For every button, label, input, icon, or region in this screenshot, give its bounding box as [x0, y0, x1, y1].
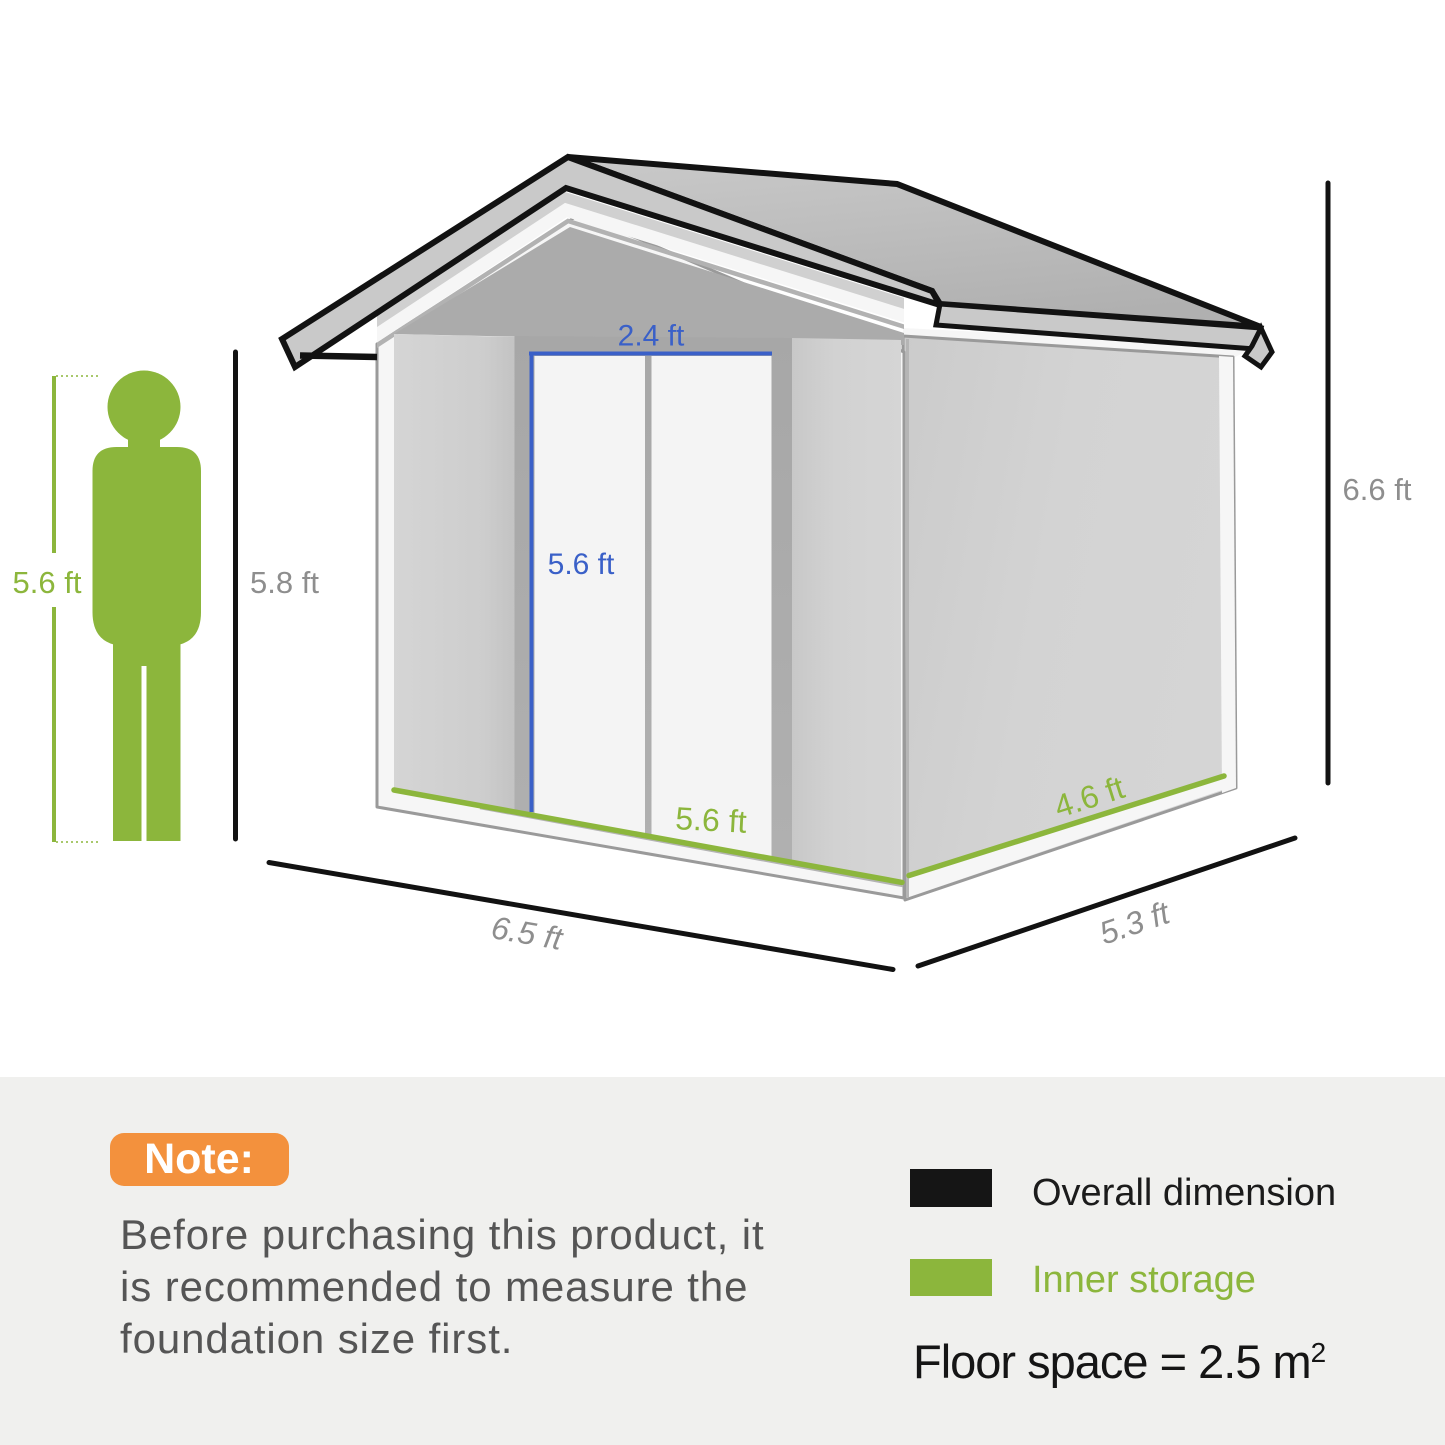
svg-text:foundation size first.: foundation size first.: [120, 1315, 513, 1362]
svg-text:2.4 ft: 2.4 ft: [618, 320, 685, 353]
svg-text:6.6 ft: 6.6 ft: [1343, 472, 1412, 507]
svg-text:Inner storage: Inner storage: [1032, 1259, 1256, 1301]
svg-text:5.6 ft: 5.6 ft: [13, 565, 82, 600]
svg-text:is recommended to measure the: is recommended to measure the: [120, 1263, 748, 1310]
svg-text:Note:: Note:: [144, 1135, 254, 1183]
svg-text:Overall dimension: Overall dimension: [1032, 1172, 1336, 1214]
svg-text:5.6 ft: 5.6 ft: [675, 800, 748, 840]
svg-text:5.8 ft: 5.8 ft: [250, 565, 319, 600]
svg-text:5.6 ft: 5.6 ft: [548, 548, 615, 581]
svg-text:Floor space = 2.5 m2: Floor space = 2.5 m2: [913, 1335, 1326, 1388]
svg-text:Before purchasing this product: Before purchasing this product, it: [120, 1211, 765, 1258]
